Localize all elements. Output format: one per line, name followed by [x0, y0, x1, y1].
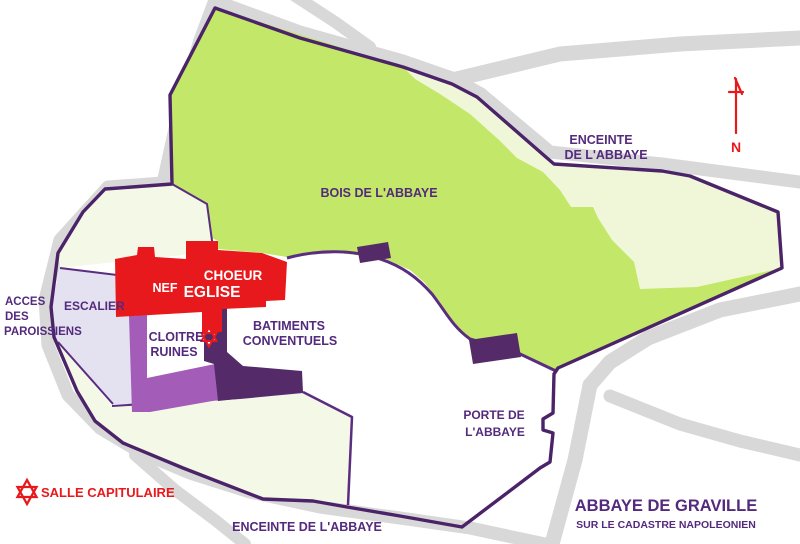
cloitre-label-line1: CLOITRE	[149, 330, 204, 344]
porte-label-line1: PORTE DE	[463, 408, 524, 422]
enceinte-bottom-label: ENCEINTE DE L'ABBAYE	[232, 520, 382, 534]
batiments-label-line1: BATIMENTS	[253, 319, 325, 333]
north-label: N	[731, 139, 741, 155]
nef-label: NEF	[153, 281, 178, 295]
enceinte-top-label-line2: DE L'ABBAYE	[564, 148, 647, 162]
eglise-label: EGLISE	[184, 284, 241, 301]
acces-label-line3: PAROISSIENS	[4, 326, 82, 338]
title-block: ABBAYE DE GRAVILLE SUR LE CADASTRE NAPOL…	[575, 497, 757, 531]
batiments-label-line2: CONVENTUELS	[243, 334, 337, 348]
porte-label-line2: L'ABBAYE	[465, 425, 525, 439]
choeur-label: CHOEUR	[204, 268, 263, 283]
enceinte-top-label-line1: ENCEINTE	[569, 133, 632, 147]
woods-label: BOIS DE L'ABBAYE	[320, 186, 437, 200]
acces-label-line2: DES	[5, 311, 29, 323]
abbey-map: N SALLE CAPITULAIRE BOIS DE L'ABBAYE ENC…	[0, 0, 800, 544]
abbey-map-canvas: N SALLE CAPITULAIRE BOIS DE L'ABBAYE ENC…	[0, 0, 800, 544]
cloitre-label-line2: RUINES	[150, 345, 197, 359]
map-subtitle: SUR LE CADASTRE NAPOLEONIEN	[576, 519, 756, 531]
map-title: ABBAYE DE GRAVILLE	[575, 497, 757, 515]
escalier-label: ESCALIER	[64, 299, 125, 313]
acces-label-line1: ACCES	[5, 296, 46, 308]
legend-salle-capitulaire-label: SALLE CAPITULAIRE	[41, 485, 175, 500]
